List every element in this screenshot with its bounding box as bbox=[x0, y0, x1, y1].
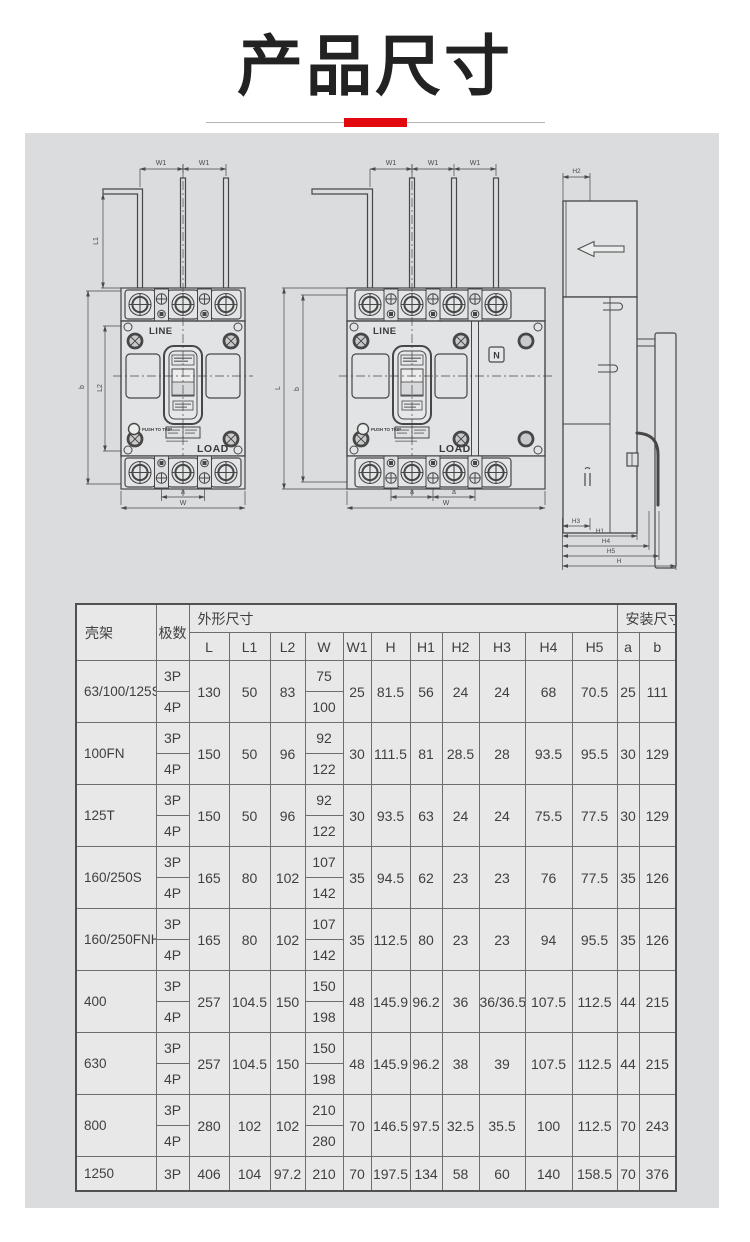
cell-H3: 36/36.5 bbox=[479, 971, 525, 1033]
cell-poles: 3P bbox=[156, 785, 189, 816]
column-header-H5: H5 bbox=[572, 633, 617, 661]
divider-red-accent bbox=[344, 118, 407, 127]
cell-H1: 63 bbox=[410, 785, 442, 847]
cell-H1: 97.5 bbox=[410, 1095, 442, 1157]
cell-frame: 63/100/125S bbox=[76, 661, 156, 723]
cell-H1: 56 bbox=[410, 661, 442, 723]
cell-poles: 4P bbox=[156, 816, 189, 847]
dim-label-w1: W1 bbox=[156, 160, 167, 167]
cell-H4: 68 bbox=[525, 661, 572, 723]
column-header-W: W bbox=[305, 633, 343, 661]
dim-label-w1: W1 bbox=[428, 160, 439, 167]
cell-H5: 95.5 bbox=[572, 723, 617, 785]
cell-W: 122 bbox=[305, 816, 343, 847]
column-header-H3: H3 bbox=[479, 633, 525, 661]
column-header-W1: W1 bbox=[343, 633, 371, 661]
cell-H1: 96.2 bbox=[410, 971, 442, 1033]
dim-label-h3: H3 bbox=[572, 518, 581, 525]
cell-H2: 23 bbox=[442, 909, 479, 971]
dimension-table-body: 63/100/125S3P1305083752581.55624246870.5… bbox=[76, 661, 676, 1192]
cell-H: 146.5 bbox=[371, 1095, 410, 1157]
cell-W: 75 bbox=[305, 661, 343, 692]
cell-H5: 77.5 bbox=[572, 785, 617, 847]
cell-L1: 80 bbox=[229, 909, 270, 971]
cell-b: 126 bbox=[639, 909, 676, 971]
cell-poles: 4P bbox=[156, 754, 189, 785]
table-row: 100FN3P15050969230111.58128.52893.595.53… bbox=[76, 723, 676, 754]
cell-L1: 104.5 bbox=[229, 1033, 270, 1095]
dim-label-w: W bbox=[180, 500, 187, 507]
cell-poles: 3P bbox=[156, 1033, 189, 1064]
cell-W: 122 bbox=[305, 754, 343, 785]
load-label: LOAD bbox=[197, 443, 229, 455]
table-row: 125T3P1505096923093.563242475.577.530129 bbox=[76, 785, 676, 816]
dim-label-w1: W1 bbox=[470, 160, 481, 167]
cell-b: 129 bbox=[639, 723, 676, 785]
content-panel: W1 W1 L1 b L2 bbox=[25, 133, 719, 1208]
cell-poles: 4P bbox=[156, 878, 189, 909]
cell-L1: 50 bbox=[229, 661, 270, 723]
dim-label-a: a bbox=[452, 489, 456, 496]
cell-H: 81.5 bbox=[371, 661, 410, 723]
cell-H3: 23 bbox=[479, 847, 525, 909]
cell-H5: 77.5 bbox=[572, 847, 617, 909]
side-view: H2 bbox=[563, 168, 677, 570]
cell-frame: 400 bbox=[76, 971, 156, 1033]
dim-label-h2: H2 bbox=[572, 168, 581, 175]
cell-W1: 30 bbox=[343, 723, 371, 785]
header-mounting-dims: 安装尺寸 bbox=[617, 604, 676, 633]
column-header-H2: H2 bbox=[442, 633, 479, 661]
load-label: LOAD bbox=[439, 443, 471, 455]
cell-H4: 93.5 bbox=[525, 723, 572, 785]
line-label: LINE bbox=[149, 326, 173, 337]
table-row: 63/100/125S3P1305083752581.55624246870.5… bbox=[76, 661, 676, 692]
cell-H3: 23 bbox=[479, 909, 525, 971]
cell-H1: 81 bbox=[410, 723, 442, 785]
cell-W1: 70 bbox=[343, 1095, 371, 1157]
cell-H3: 24 bbox=[479, 785, 525, 847]
cell-W: 92 bbox=[305, 785, 343, 816]
dim-label-h1: H1 bbox=[596, 528, 605, 535]
cell-L2: 150 bbox=[270, 971, 305, 1033]
cell-poles: 4P bbox=[156, 940, 189, 971]
cell-W1: 25 bbox=[343, 661, 371, 723]
header-poles: 极数 bbox=[156, 604, 189, 661]
cell-b: 376 bbox=[639, 1157, 676, 1192]
cell-L: 130 bbox=[189, 661, 229, 723]
cell-H3: 35.5 bbox=[479, 1095, 525, 1157]
cell-W: 100 bbox=[305, 692, 343, 723]
cell-L2: 150 bbox=[270, 1033, 305, 1095]
page-title: 产品尺寸 bbox=[0, 22, 750, 111]
cell-W1: 30 bbox=[343, 785, 371, 847]
column-header-H: H bbox=[371, 633, 410, 661]
dim-label-h: H bbox=[617, 558, 622, 565]
cell-poles: 3P bbox=[156, 1157, 189, 1192]
cell-W: 198 bbox=[305, 1002, 343, 1033]
cell-W: 210 bbox=[305, 1095, 343, 1126]
cell-H1: 80 bbox=[410, 909, 442, 971]
dim-label-b: b bbox=[79, 385, 86, 389]
cell-H1: 134 bbox=[410, 1157, 442, 1192]
dim-label-a: a bbox=[181, 489, 185, 496]
column-header-H1: H1 bbox=[410, 633, 442, 661]
cell-a: 44 bbox=[617, 971, 639, 1033]
cell-poles: 3P bbox=[156, 661, 189, 692]
front-view-4p: W1 W1 W1 L b bbox=[275, 160, 553, 508]
cell-H: 93.5 bbox=[371, 785, 410, 847]
table-row: 160/250FNH3P1658010210735112.58023239495… bbox=[76, 909, 676, 940]
cell-b: 215 bbox=[639, 971, 676, 1033]
cell-H3: 24 bbox=[479, 661, 525, 723]
cell-poles: 3P bbox=[156, 723, 189, 754]
cell-frame: 160/250FNH bbox=[76, 909, 156, 971]
cell-H2: 28.5 bbox=[442, 723, 479, 785]
cell-H: 112.5 bbox=[371, 909, 410, 971]
dim-label-w1: W1 bbox=[386, 160, 397, 167]
cell-H: 145.9 bbox=[371, 971, 410, 1033]
cell-W: 142 bbox=[305, 940, 343, 971]
cell-W1: 35 bbox=[343, 909, 371, 971]
cell-W: 198 bbox=[305, 1064, 343, 1095]
dim-label-a: a bbox=[410, 489, 414, 496]
cell-poles: 3P bbox=[156, 1095, 189, 1126]
cell-W: 107 bbox=[305, 847, 343, 878]
push-to-trip-label: PUSH TO TRIP bbox=[371, 427, 401, 432]
cell-H5: 112.5 bbox=[572, 1033, 617, 1095]
column-header-L2: L2 bbox=[270, 633, 305, 661]
dim-label-h5: H5 bbox=[607, 548, 616, 555]
cell-H2: 24 bbox=[442, 785, 479, 847]
cell-W1: 35 bbox=[343, 847, 371, 909]
header-outline-dims: 外形尺寸 bbox=[189, 604, 617, 633]
cell-H4: 76 bbox=[525, 847, 572, 909]
cell-b: 215 bbox=[639, 1033, 676, 1095]
cell-a: 70 bbox=[617, 1095, 639, 1157]
cell-frame: 630 bbox=[76, 1033, 156, 1095]
cell-a: 25 bbox=[617, 661, 639, 723]
cell-poles: 4P bbox=[156, 1064, 189, 1095]
cell-H2: 23 bbox=[442, 847, 479, 909]
cell-frame: 100FN bbox=[76, 723, 156, 785]
cell-W: 107 bbox=[305, 909, 343, 940]
cell-b: 126 bbox=[639, 847, 676, 909]
column-header-L1: L1 bbox=[229, 633, 270, 661]
cell-b: 111 bbox=[639, 661, 676, 723]
cell-L1: 104 bbox=[229, 1157, 270, 1192]
dimension-table: 壳架 极数 外形尺寸 安装尺寸 LL1L2WW1HH1H2H3H4H5ab 63… bbox=[75, 603, 677, 1192]
cell-H4: 107.5 bbox=[525, 1033, 572, 1095]
cell-L2: 96 bbox=[270, 723, 305, 785]
cell-L: 257 bbox=[189, 971, 229, 1033]
dim-label-h4: H4 bbox=[602, 538, 611, 545]
line-label: LINE bbox=[373, 326, 397, 337]
cell-L: 280 bbox=[189, 1095, 229, 1157]
cell-W: 210 bbox=[305, 1157, 343, 1192]
cell-a: 35 bbox=[617, 909, 639, 971]
cell-a: 35 bbox=[617, 847, 639, 909]
cell-a: 30 bbox=[617, 785, 639, 847]
cell-poles: 4P bbox=[156, 692, 189, 723]
cell-L2: 102 bbox=[270, 1095, 305, 1157]
cell-H4: 94 bbox=[525, 909, 572, 971]
cell-L: 150 bbox=[189, 723, 229, 785]
column-header-H4: H4 bbox=[525, 633, 572, 661]
dim-label-w1: W1 bbox=[199, 160, 210, 167]
cell-b: 129 bbox=[639, 785, 676, 847]
cell-H: 197.5 bbox=[371, 1157, 410, 1192]
cell-a: 70 bbox=[617, 1157, 639, 1192]
cell-H4: 107.5 bbox=[525, 971, 572, 1033]
dim-label-w: W bbox=[443, 500, 450, 507]
dim-label-l2: L2 bbox=[97, 384, 104, 392]
cell-L1: 104.5 bbox=[229, 971, 270, 1033]
cell-L2: 96 bbox=[270, 785, 305, 847]
column-header-L: L bbox=[189, 633, 229, 661]
dim-label-l1: L1 bbox=[93, 237, 100, 245]
cell-L: 165 bbox=[189, 909, 229, 971]
cell-W: 92 bbox=[305, 723, 343, 754]
cell-W: 150 bbox=[305, 1033, 343, 1064]
cell-L: 257 bbox=[189, 1033, 229, 1095]
cell-frame: 160/250S bbox=[76, 847, 156, 909]
push-to-trip-label: PUSH TO TRIP bbox=[142, 427, 172, 432]
cell-H2: 36 bbox=[442, 971, 479, 1033]
cell-W: 150 bbox=[305, 971, 343, 1002]
cell-H4: 75.5 bbox=[525, 785, 572, 847]
cell-H3: 28 bbox=[479, 723, 525, 785]
cell-W: 280 bbox=[305, 1126, 343, 1157]
cell-H3: 60 bbox=[479, 1157, 525, 1192]
table-row: 12503P40610497.221070197.51345860140158.… bbox=[76, 1157, 676, 1192]
cell-H2: 38 bbox=[442, 1033, 479, 1095]
cell-poles: 3P bbox=[156, 971, 189, 1002]
title-section: 产品尺寸 bbox=[0, 0, 750, 133]
cell-H2: 32.5 bbox=[442, 1095, 479, 1157]
table-row: 4003P257104.515015048145.996.23636/36.51… bbox=[76, 971, 676, 1002]
cell-L2: 97.2 bbox=[270, 1157, 305, 1192]
cell-H5: 158.5 bbox=[572, 1157, 617, 1192]
cell-L1: 102 bbox=[229, 1095, 270, 1157]
cell-H: 111.5 bbox=[371, 723, 410, 785]
cell-W1: 70 bbox=[343, 1157, 371, 1192]
front-view-3p: W1 W1 L1 b L2 bbox=[79, 160, 253, 508]
cell-frame: 800 bbox=[76, 1095, 156, 1157]
cell-frame: 125T bbox=[76, 785, 156, 847]
cell-L2: 83 bbox=[270, 661, 305, 723]
cell-poles: 4P bbox=[156, 1002, 189, 1033]
cell-H5: 112.5 bbox=[572, 971, 617, 1033]
cell-W1: 48 bbox=[343, 971, 371, 1033]
cell-H5: 95.5 bbox=[572, 909, 617, 971]
dim-label-l: L bbox=[275, 386, 282, 390]
cell-poles: 3P bbox=[156, 847, 189, 878]
column-header-b: b bbox=[639, 633, 676, 661]
cell-L2: 102 bbox=[270, 847, 305, 909]
cell-a: 30 bbox=[617, 723, 639, 785]
cell-frame: 1250 bbox=[76, 1157, 156, 1192]
dim-label-b: b bbox=[294, 387, 301, 391]
cell-b: 243 bbox=[639, 1095, 676, 1157]
table-row: 160/250S3P165801021073594.56223237677.53… bbox=[76, 847, 676, 878]
cell-H: 145.9 bbox=[371, 1033, 410, 1095]
cell-L2: 102 bbox=[270, 909, 305, 971]
cell-a: 44 bbox=[617, 1033, 639, 1095]
cell-H2: 24 bbox=[442, 661, 479, 723]
cell-H5: 112.5 bbox=[572, 1095, 617, 1157]
cell-L: 150 bbox=[189, 785, 229, 847]
neutral-pole-label: N bbox=[493, 351, 500, 361]
table-row: 6303P257104.515015048145.996.23839107.51… bbox=[76, 1033, 676, 1064]
cell-poles: 3P bbox=[156, 909, 189, 940]
table-row: 8003P28010210221070146.597.532.535.51001… bbox=[76, 1095, 676, 1126]
header-frame: 壳架 bbox=[76, 604, 156, 661]
cell-L1: 50 bbox=[229, 723, 270, 785]
cell-H4: 140 bbox=[525, 1157, 572, 1192]
technical-drawings: W1 W1 L1 b L2 bbox=[25, 133, 719, 603]
cell-H3: 39 bbox=[479, 1033, 525, 1095]
cell-poles: 4P bbox=[156, 1126, 189, 1157]
title-divider bbox=[0, 113, 750, 133]
cell-H2: 58 bbox=[442, 1157, 479, 1192]
cell-H1: 96.2 bbox=[410, 1033, 442, 1095]
column-header-a: a bbox=[617, 633, 639, 661]
cell-H5: 70.5 bbox=[572, 661, 617, 723]
cell-L: 165 bbox=[189, 847, 229, 909]
cell-H1: 62 bbox=[410, 847, 442, 909]
cell-L: 406 bbox=[189, 1157, 229, 1192]
cell-W1: 48 bbox=[343, 1033, 371, 1095]
cell-H: 94.5 bbox=[371, 847, 410, 909]
cell-W: 142 bbox=[305, 878, 343, 909]
cell-L1: 80 bbox=[229, 847, 270, 909]
cell-L1: 50 bbox=[229, 785, 270, 847]
cell-H4: 100 bbox=[525, 1095, 572, 1157]
